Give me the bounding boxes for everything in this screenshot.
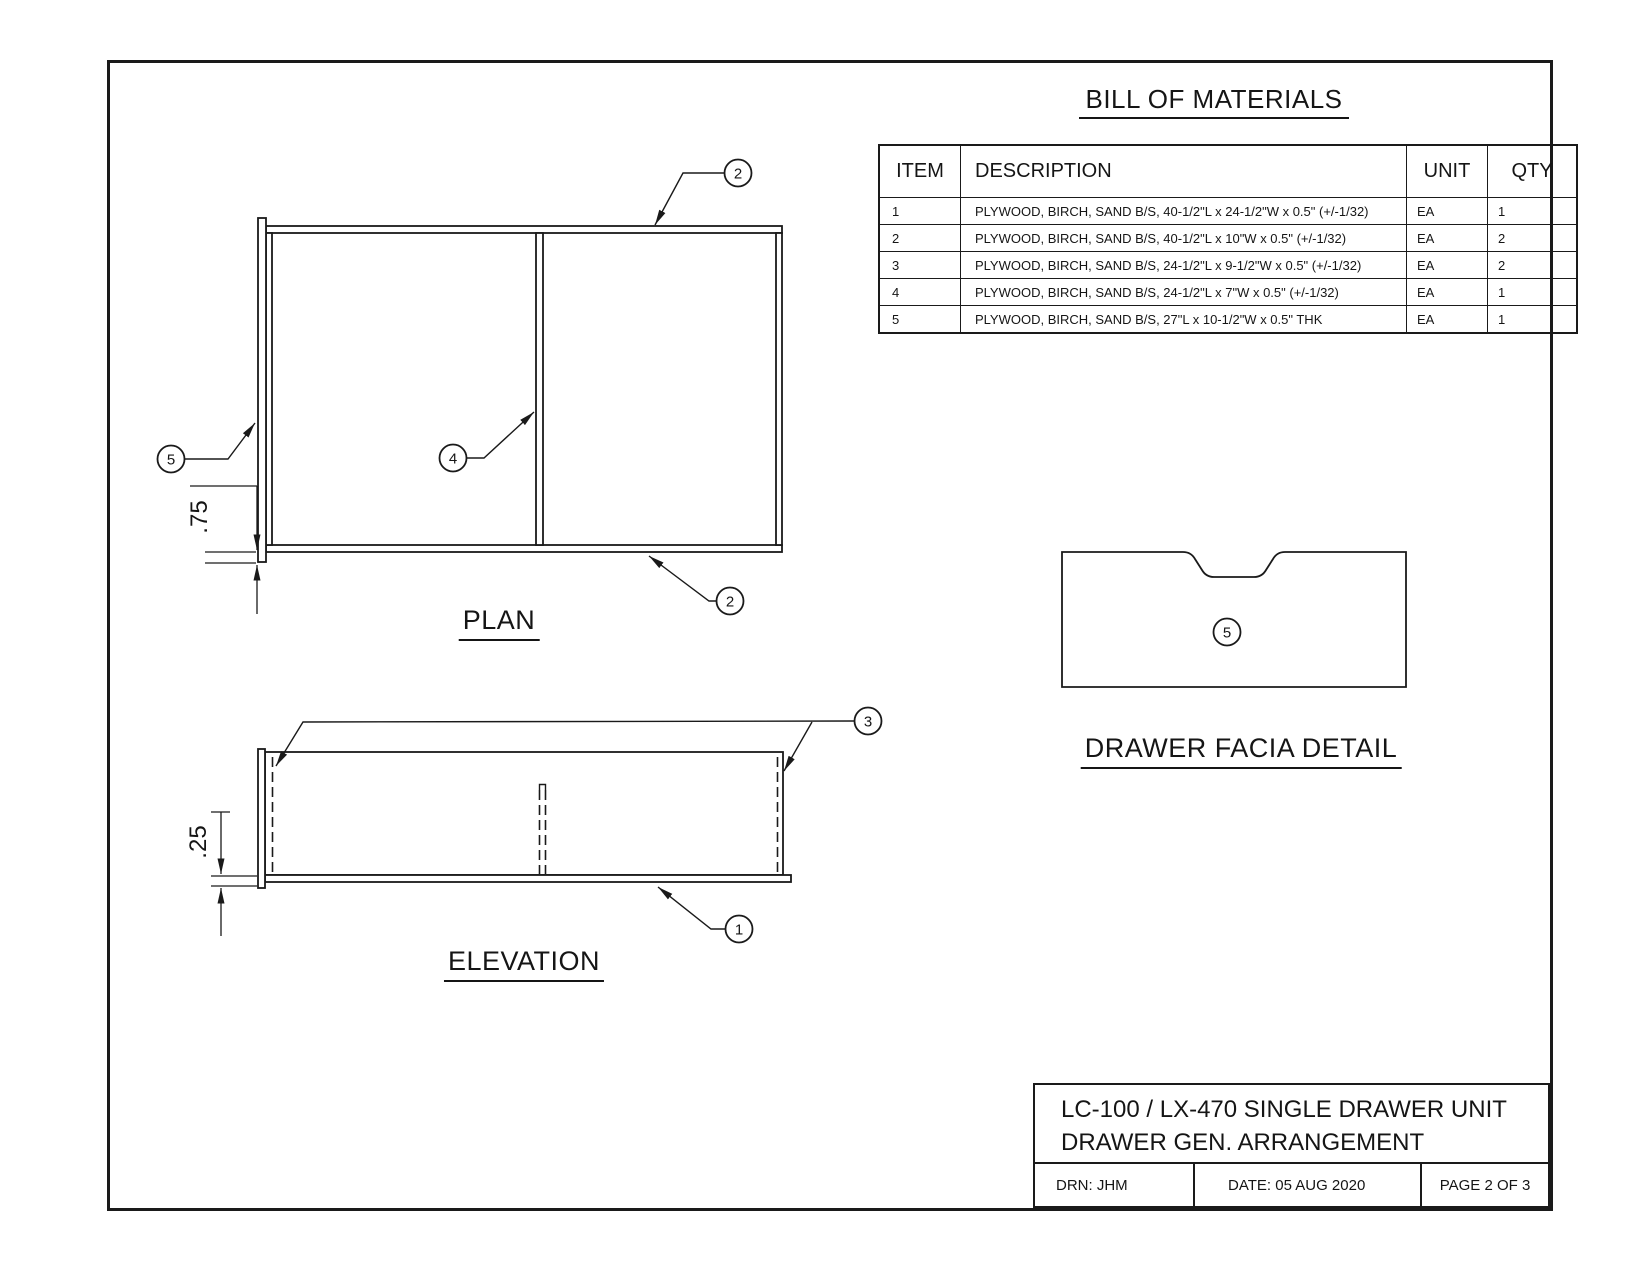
balloon-number: 5 [1223, 624, 1231, 641]
balloon-number: 1 [735, 921, 743, 938]
elevation-bottom-panel [265, 875, 791, 882]
drawing-date: DATE: 05 AUG 2020 [1193, 1164, 1420, 1206]
balloon-number: 4 [449, 450, 457, 467]
bom-unit: EA [1407, 225, 1488, 252]
drawn-by: DRN: JHM [1035, 1164, 1193, 1206]
title-block-info-row: DRN: JHM DATE: 05 AUG 2020 PAGE 2 OF 3 [1035, 1162, 1548, 1206]
plan-right-side-panel [776, 233, 782, 545]
bom-description: PLYWOOD, BIRCH, SAND B/S, 24-1/2"L x 7"W… [961, 279, 1407, 306]
drawing-title-line1: LC-100 / LX-470 SINGLE DRAWER UNIT [1061, 1093, 1548, 1126]
bom-qty: 1 [1488, 279, 1578, 306]
bom-qty: 1 [1488, 306, 1578, 334]
bom-item: 2 [879, 225, 961, 252]
table-row: 3 PLYWOOD, BIRCH, SAND B/S, 24-1/2"L x 9… [879, 252, 1577, 279]
bom-item: 5 [879, 306, 961, 334]
elevation-dim-25: .25 [185, 812, 257, 936]
bom-description: PLYWOOD, BIRCH, SAND B/S, 27"L x 10-1/2"… [961, 306, 1407, 334]
bom-header-unit: UNIT [1407, 145, 1488, 198]
facia-detail-view: 5 [1062, 552, 1406, 687]
balloon-number: 5 [167, 451, 175, 468]
dim-75-label: .75 [186, 500, 213, 533]
table-row: 4 PLYWOOD, BIRCH, SAND B/S, 24-1/2"L x 7… [879, 279, 1577, 306]
bom-qty: 1 [1488, 198, 1578, 225]
plan-facia-strip [258, 218, 266, 562]
plan-top-rail [266, 226, 782, 233]
elevation-view-title: ELEVATION [444, 946, 604, 982]
bom-table: ITEM DESCRIPTION UNIT QTY 1 PLYWOOD, BIR… [878, 144, 1578, 334]
bom-unit: EA [1407, 306, 1488, 334]
page-number: PAGE 2 OF 3 [1420, 1164, 1548, 1206]
bom-title: BILL OF MATERIALS [878, 84, 1550, 115]
balloon-item5-detail: 5 [1214, 619, 1241, 646]
bom-qty: 2 [1488, 252, 1578, 279]
plan-divider [536, 233, 543, 545]
table-row: 5 PLYWOOD, BIRCH, SAND B/S, 27"L x 10-1/… [879, 306, 1577, 334]
balloon-item1-bottom-panel: 1 [658, 887, 753, 943]
elevation-facia-strip [258, 749, 265, 888]
bom-header-item: ITEM [879, 145, 961, 198]
bom-unit: EA [1407, 252, 1488, 279]
bom-header-description: DESCRIPTION [961, 145, 1407, 198]
elevation-outline [265, 752, 783, 875]
bom-description: PLYWOOD, BIRCH, SAND B/S, 40-1/2"L x 10"… [961, 225, 1407, 252]
title-block: LC-100 / LX-470 SINGLE DRAWER UNIT DRAWE… [1033, 1083, 1550, 1208]
balloon-number: 2 [726, 593, 734, 610]
balloon-number: 3 [864, 713, 872, 730]
balloon-item2-top: 2 [655, 160, 752, 226]
bom-description: PLYWOOD, BIRCH, SAND B/S, 40-1/2"L x 24-… [961, 198, 1407, 225]
bom-description: PLYWOOD, BIRCH, SAND B/S, 24-1/2"L x 9-1… [961, 252, 1407, 279]
balloon-number: 2 [734, 165, 742, 182]
facia-detail-title: DRAWER FACIA DETAIL [1081, 733, 1402, 769]
plan-bottom-rail [266, 545, 782, 552]
plan-dim-75: .75 [186, 486, 257, 614]
title-block-title: LC-100 / LX-470 SINGLE DRAWER UNIT DRAWE… [1035, 1085, 1548, 1162]
table-row: 2 PLYWOOD, BIRCH, SAND B/S, 40-1/2"L x 1… [879, 225, 1577, 252]
bom-qty: 2 [1488, 225, 1578, 252]
table-row: 1 PLYWOOD, BIRCH, SAND B/S, 40-1/2"L x 2… [879, 198, 1577, 225]
plan-view: .75 2 2 4 5 [158, 160, 783, 615]
drawing-title-line2: DRAWER GEN. ARRANGEMENT [1061, 1126, 1548, 1159]
bom-header-row: ITEM DESCRIPTION UNIT QTY [879, 145, 1577, 198]
plan-view-title: PLAN [459, 605, 540, 641]
bom-header-qty: QTY [1488, 145, 1578, 198]
bom-item: 4 [879, 279, 961, 306]
balloon-item4-divider: 4 [440, 412, 535, 472]
elevation-view: .25 3 1 [185, 708, 882, 943]
bom-item: 3 [879, 252, 961, 279]
balloon-item5-facia: 5 [158, 423, 256, 473]
drawing-sheet: { "sheet": { "bom": { "title": "BILL OF … [0, 0, 1650, 1275]
bom-unit: EA [1407, 198, 1488, 225]
dim-25-label: .25 [185, 825, 212, 858]
bom-item: 1 [879, 198, 961, 225]
bom-unit: EA [1407, 279, 1488, 306]
balloon-item2-bottom: 2 [649, 556, 744, 615]
